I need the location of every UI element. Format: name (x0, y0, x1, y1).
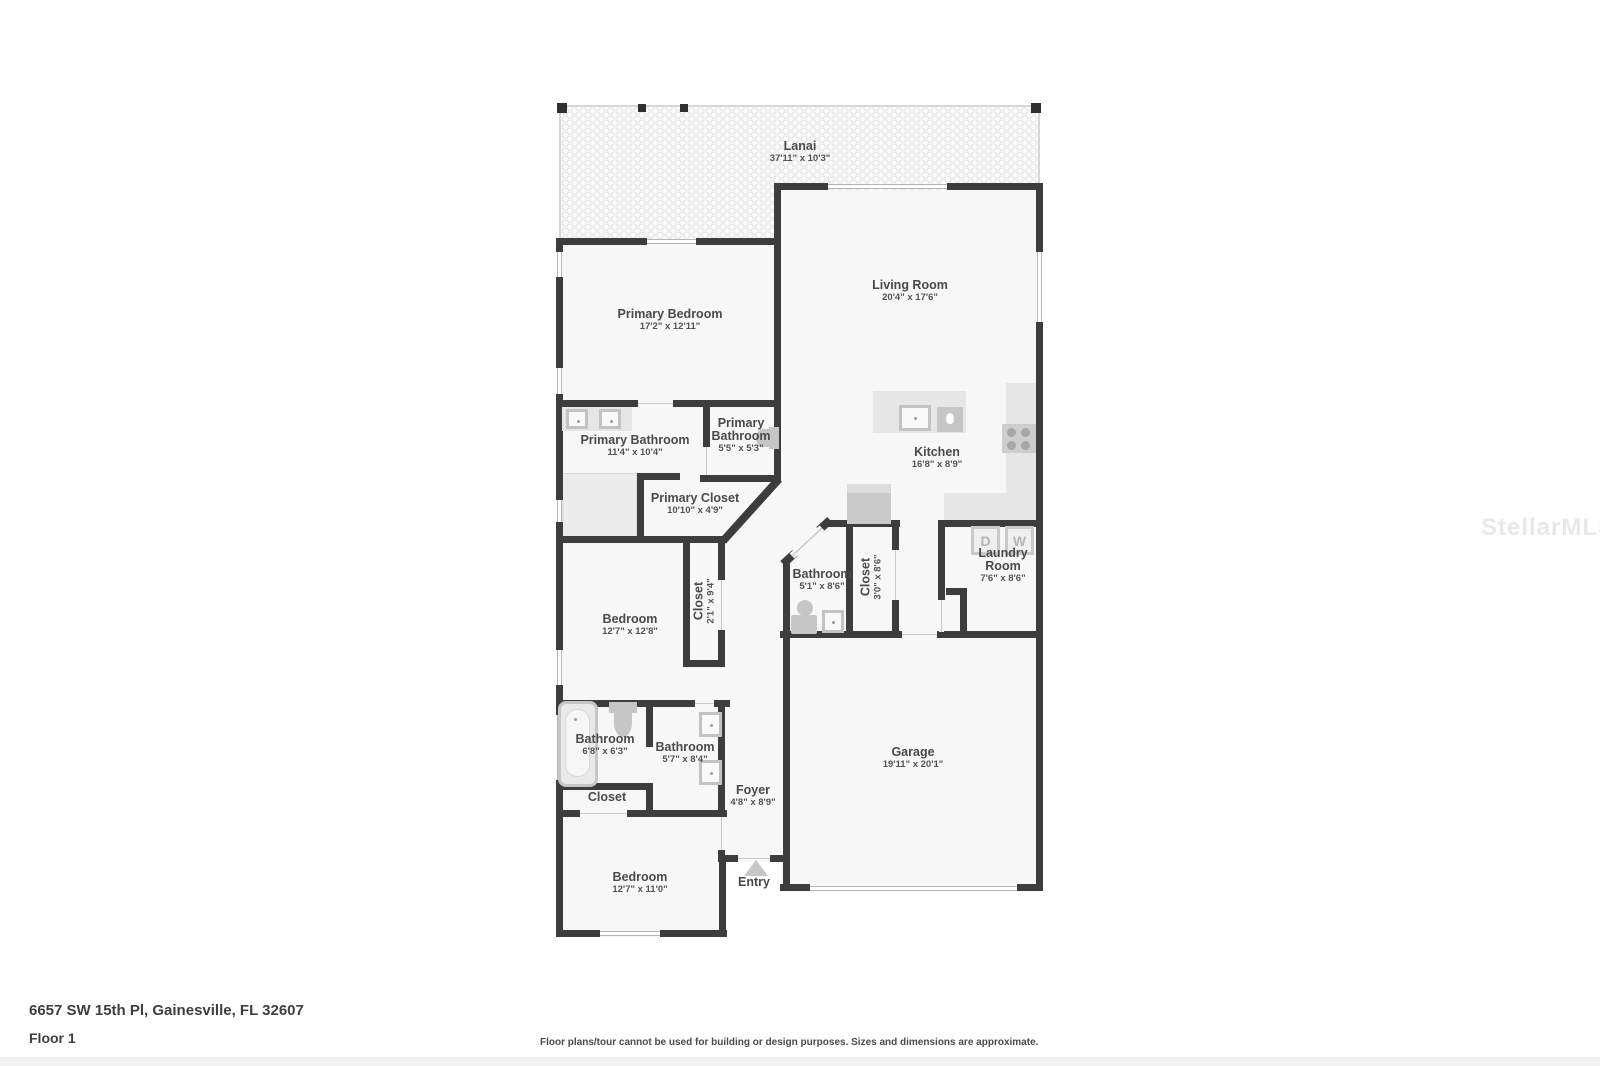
room-label-primary-bedroom: Primary Bedroom 17'2" x 12'11" (618, 308, 723, 333)
wall-segment (660, 930, 727, 937)
wall-segment (960, 595, 967, 631)
window (647, 239, 696, 244)
room-name: Laundry Room (971, 547, 1035, 573)
room-label-bathroom-3: Bathroom 5'7" x 8'4" (655, 741, 714, 766)
window (557, 650, 562, 685)
sink-icon (599, 409, 621, 429)
wall-segment (947, 183, 1043, 190)
window (557, 368, 562, 394)
room-name: Bathroom (792, 568, 851, 581)
room-label-laundry-room: Laundry Room 7'6" x 8'6" (971, 547, 1035, 585)
room-name: Bedroom (612, 871, 667, 884)
wall-segment (892, 600, 899, 638)
room-name: Bedroom (602, 613, 658, 626)
wall-segment (683, 543, 690, 667)
wall-segment (774, 183, 828, 190)
room-dims: 5'5" x 5'3" (708, 443, 774, 455)
room-dims: 7'6" x 8'6" (971, 573, 1035, 585)
window (557, 500, 562, 522)
room-name: Lanai (770, 140, 831, 153)
refrigerator-icon (847, 484, 891, 493)
room-name: Primary Bathroom (580, 434, 689, 447)
wall-segment (556, 522, 563, 650)
room-label-kitchen: Kitchen 16'8" x 8'9" (912, 446, 963, 471)
room-name: Primary Bathroom (708, 417, 774, 443)
wall-segment (700, 475, 781, 482)
shower (562, 473, 637, 542)
room-dims: 37'11" x 10'3" (770, 153, 831, 165)
burner-icon (1021, 441, 1030, 450)
room-label-closet-3: Closet (588, 791, 626, 804)
wall-segment (556, 277, 563, 368)
room-name: Kitchen (912, 446, 963, 459)
sink-icon (822, 610, 844, 633)
room-name: Bathroom (575, 733, 634, 746)
room-label-living-room: Living Room 20'4" x 17'6" (872, 279, 948, 304)
wall-segment (673, 400, 781, 407)
floor-label: Floor 1 (29, 1030, 76, 1046)
room-dims: 4'8" x 8'9" (730, 797, 775, 809)
room-label-garage: Garage 19'11" x 20'1" (883, 746, 944, 771)
sink-icon (566, 409, 588, 429)
room-name: Closet (588, 791, 626, 804)
window (828, 184, 947, 189)
wall-segment (627, 810, 727, 817)
wall-segment (646, 700, 653, 747)
toilet-icon (609, 702, 637, 713)
wall-segment (646, 783, 653, 817)
room-dims: 19'11" x 20'1" (883, 759, 944, 771)
toilet-icon (797, 600, 813, 616)
room-dims: 10'10" x 4'9" (651, 505, 739, 517)
room-label-bathroom-hall: Bathroom 5'1" x 8'6" (792, 568, 851, 593)
wall-segment (938, 520, 945, 600)
room-name: Primary Closet (651, 492, 739, 505)
burner-icon (1007, 441, 1016, 450)
room-name: Entry (738, 876, 770, 889)
room-dims: 5'7" x 8'4" (655, 754, 714, 766)
room-label-primary-bathroom-2: Primary Bathroom 5'5" x 5'3" (708, 417, 774, 455)
wall-segment (718, 543, 725, 580)
watermark: StellarMLS (1481, 514, 1600, 542)
window (600, 931, 660, 936)
door-opening (580, 811, 627, 816)
room-label-closet-2: Closet 2'1" x 9'4" (693, 578, 718, 623)
wall-segment (1036, 322, 1043, 891)
footer-bar (0, 1057, 1600, 1066)
room-dims: 20'4" x 17'6" (872, 292, 948, 304)
wall-segment (719, 862, 726, 937)
room-label-primary-closet: Primary Closet 10'10" x 4'9" (651, 492, 739, 517)
door-opening (719, 580, 724, 630)
room-name: Closet (693, 578, 706, 623)
room-name: Primary Bedroom (618, 308, 723, 321)
door-opening (893, 550, 898, 600)
wall-segment (946, 588, 967, 595)
burner-icon (1007, 428, 1016, 437)
room-label-bedroom-2: Bedroom 12'7" x 12'8" (602, 613, 658, 638)
wall-segment (637, 473, 644, 543)
window (1037, 252, 1042, 322)
entry-arrow-icon (744, 860, 768, 876)
door-opening (902, 632, 937, 637)
disclaimer-text: Floor plans/tour cannot be used for buil… (540, 1037, 1038, 1048)
room-name: Closet (860, 554, 873, 599)
burner-icon (1021, 428, 1030, 437)
floor-plan: D W Lanai 37'11" x 10'3" Living Room 20'… (0, 0, 1600, 1066)
room-label-foyer: Foyer 4'8" x 8'9" (730, 784, 775, 809)
room-name: Living Room (872, 279, 948, 292)
drain-icon (574, 718, 577, 721)
room-dims: 5'1" x 8'6" (792, 581, 851, 593)
kitchen-sink-icon (899, 405, 931, 431)
wall-segment (718, 850, 725, 862)
address-text: 6657 SW 15th Pl, Gainesville, FL 32607 (29, 1002, 304, 1019)
door-opening (695, 701, 714, 706)
wall-segment (783, 560, 790, 891)
door-opening (939, 600, 944, 632)
sink-icon (699, 712, 722, 737)
door-opening (719, 817, 724, 850)
room-label-primary-bathroom: Primary Bathroom 11'4" x 10'4" (580, 434, 689, 459)
wall-segment (556, 238, 647, 245)
door-opening (638, 401, 673, 406)
wall-segment (718, 630, 725, 667)
wall-segment (937, 631, 1043, 638)
wall-segment (556, 400, 638, 407)
room-name: Garage (883, 746, 944, 759)
window (557, 252, 562, 277)
room-name: Foyer (730, 784, 775, 797)
room-label-entry: Entry (738, 876, 770, 889)
toilet-icon (791, 615, 817, 634)
room-dims: 6'8" x 6'3" (575, 746, 634, 758)
room-dims: 11'4" x 10'4" (580, 447, 689, 459)
room-label-bedroom-3: Bedroom 12'7" x 11'0" (612, 871, 667, 896)
room-name: Bathroom (655, 741, 714, 754)
wall-segment (892, 527, 899, 550)
room-label-bathroom-tub: Bathroom 6'8" x 6'3" (575, 733, 634, 758)
room-dims: 16'8" x 8'9" (912, 459, 963, 471)
garage-door (810, 886, 1017, 891)
room-dims: 12'7" x 11'0" (612, 884, 667, 896)
counter (944, 493, 1036, 520)
room-label-lanai: Lanai 37'11" x 10'3" (770, 140, 831, 165)
room-dims: 17'2" x 12'11" (618, 321, 723, 333)
wall-segment (556, 238, 563, 252)
wall-segment (556, 780, 563, 937)
room-dims: 12'7" x 12'8" (602, 626, 658, 638)
wall-segment (696, 238, 781, 245)
stove-icon (1002, 424, 1036, 453)
water-drop-icon (946, 413, 954, 424)
room-label-closet-hall: Closet 3'0" x 8'6" (860, 554, 885, 599)
wall-segment (1036, 186, 1043, 252)
room-dims: 3'0" x 8'6" (873, 554, 885, 599)
room-dims: 2'1" x 9'4" (706, 578, 718, 623)
